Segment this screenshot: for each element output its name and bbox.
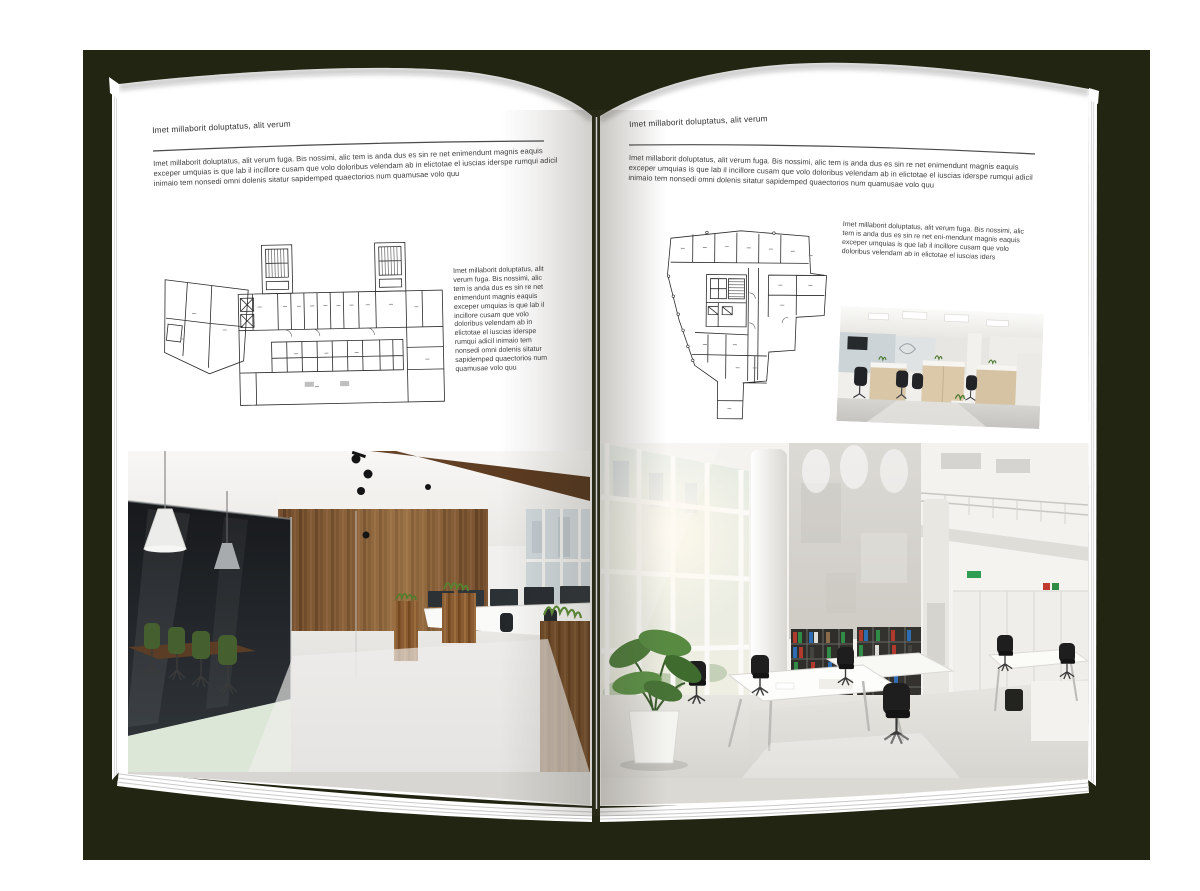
spread-content: Imet millaborit doluptatus, alit verum I…	[0, 0, 1200, 891]
left-floorplan-drawing	[150, 227, 449, 421]
right-page-side-text: Imet millaborit doluptatus, alit verum f…	[842, 221, 1025, 264]
column-back	[923, 499, 949, 705]
left-photo-curved-bottom	[128, 772, 590, 808]
right-page-header: Imet millaborit doluptatus, alit verum	[629, 114, 768, 129]
left-page-header: Imet millaborit doluptatus, alit verum	[152, 119, 291, 135]
magazine-mockup-scene: Imet millaborit doluptatus, alit verum I…	[0, 0, 1200, 891]
left-page-side-text: Imet millaborit doluptatus, alit verum f…	[453, 266, 556, 375]
right-photo-curved-bottom	[601, 778, 1088, 808]
right-page-intro: Imet millaborit doluptatus, alit verum f…	[628, 153, 1041, 193]
right-page-photo-office	[601, 443, 1088, 779]
concrete-wall	[789, 443, 921, 639]
right-floorplan-drawing	[646, 222, 835, 424]
right-page-photo-small	[836, 306, 1043, 429]
left-page-photo-office	[128, 451, 590, 773]
